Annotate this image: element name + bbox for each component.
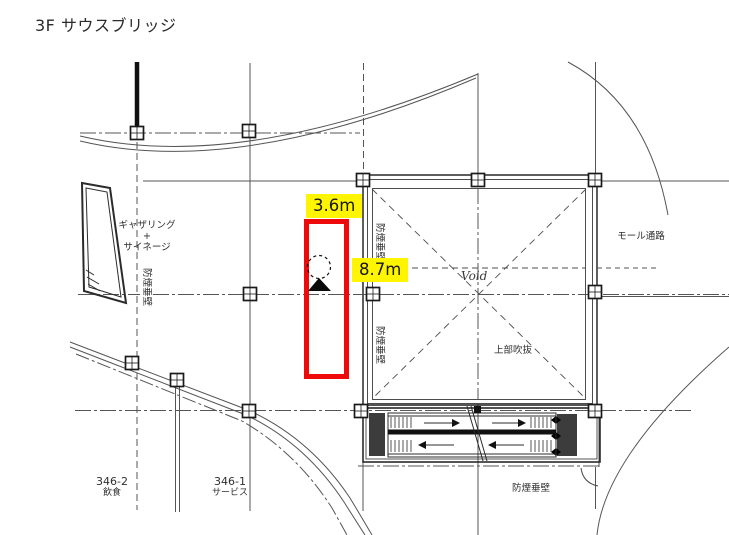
grid-lines xyxy=(75,62,729,535)
smoke-barrier-label-grid: 防煙垂壁 xyxy=(140,265,152,309)
tenant-346-2-number: 346-2 xyxy=(86,476,138,488)
upper-atrium-label: 上部吹抜 xyxy=(484,345,542,356)
tenant-346-1-type: サービス xyxy=(202,488,258,498)
depth-measure-label: 8.7m xyxy=(352,258,408,282)
gathering-line1: ギャザリング xyxy=(108,220,186,231)
escalator-block xyxy=(363,405,600,462)
tenant-346-2-type: 飲食 xyxy=(86,488,138,498)
tenant-346-2: 346-2 飲食 xyxy=(86,476,138,498)
floor-plan-page: 3F サウスブリッジ ギャザリング + サイネージ 防煙垂壁 防煙垂壁 防煙垂壁… xyxy=(0,0,729,535)
tenant-346-1-number: 346-1 xyxy=(202,476,258,488)
gathering-signage-label: ギャザリング + サイネージ xyxy=(108,220,186,253)
mall-corridor-label: モール通路 xyxy=(609,231,673,242)
width-measure-label: 3.6m xyxy=(306,194,362,218)
gathering-line3: サイネージ xyxy=(108,242,186,253)
measurement-highlight-rect xyxy=(307,222,347,377)
gathering-line2: + xyxy=(108,231,186,242)
view-position-marker xyxy=(308,256,332,292)
tenant-346-1: 346-1 サービス xyxy=(202,476,258,498)
page-title: 3F サウスブリッジ xyxy=(35,12,176,36)
smoke-barrier-label-escalator: 防煙垂壁 xyxy=(500,483,562,494)
smoke-barrier-label-wall-lower: 防煙垂壁 xyxy=(373,323,385,367)
void-label: Void xyxy=(461,269,487,283)
